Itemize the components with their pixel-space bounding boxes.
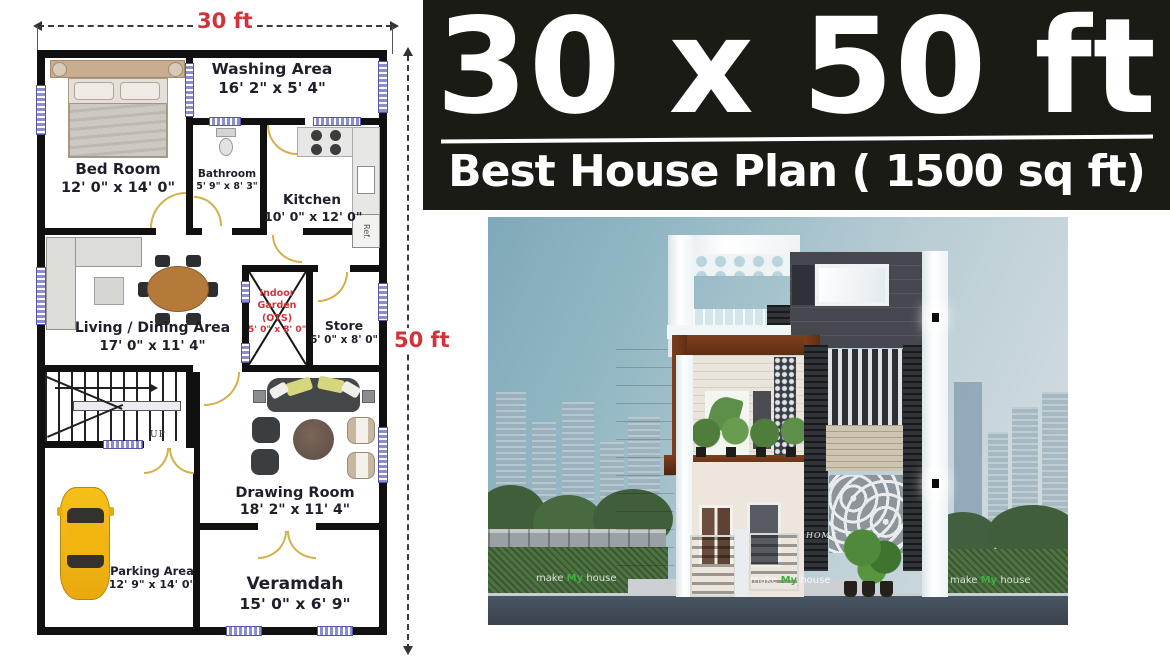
door-swing-icon [267,125,297,155]
door-swing-icon [272,235,302,263]
plant-pot [756,447,766,457]
height-dimension-label: 50 ft [390,328,454,352]
nightstand-icon [168,62,183,77]
watermark-text: house [586,573,616,584]
pillar-right [922,251,948,597]
stove-icon [311,130,322,141]
pergola-slab [692,254,791,276]
bed-icon [50,60,185,78]
stove-icon [311,144,322,155]
stone-band [826,425,910,471]
wall [193,228,202,235]
door-swing-icon [204,372,240,406]
room-label-kitchen: Kitchen 10' 0" x 12' 0" [264,192,360,225]
watermark: make My house [950,575,1030,586]
plant-pot [862,581,875,597]
wall [44,228,156,235]
door-swing-icon [150,192,186,228]
toilet-icon [219,138,233,156]
road [488,596,1068,625]
plant-pot [844,581,857,597]
wall [316,523,379,530]
plant-pot [726,447,736,457]
arrow-down-icon [403,646,413,655]
window-marker [37,268,45,324]
window-marker [379,284,387,320]
room-label-bathroom: Bathroom 5' 9" x 8' 3" [194,168,260,193]
car-roof [67,525,104,553]
wall-lamp-icon [932,313,939,322]
extension-line [392,26,393,54]
house-render: HOME make My house make My house make My… [488,217,1068,625]
wall-lamp-icon [932,479,939,488]
car-mirror [57,507,62,516]
nightstand-icon [52,62,67,77]
thumbnail-page: 30 ft 50 ft [0,0,1170,658]
dining-table-icon [147,266,209,312]
title-banner: 30 x 50 ft Best House Plan ( 1500 sq ft) [423,0,1170,210]
pillow-icon [120,82,160,100]
door-swing-icon [194,196,222,226]
side-table-icon [253,390,266,403]
hedge-right [936,549,1068,595]
tall-plant [840,523,904,585]
window-marker [186,64,193,116]
armchair-icon [347,452,375,479]
watermark-brand: My [781,575,797,586]
stove-icon [330,144,341,155]
wall [37,50,45,635]
width-dimension-label: 30 ft [193,9,257,33]
watermark-brand: My [981,575,997,586]
plant-pot [696,447,706,457]
car-windshield [67,508,104,523]
wall [44,365,193,372]
extension-line [37,26,38,50]
watermark: make My house [750,575,830,586]
watermark-text: make [750,575,777,586]
floor-plan: 30 ft 50 ft [0,0,430,658]
wall [193,523,258,530]
plant-pot [786,447,796,457]
car-rear-window [67,555,104,568]
door-swing-icon [258,531,287,559]
room-label-living-dining: Living / Dining Area 17' 0" x 11' 4" [70,320,235,354]
window-marker [242,344,249,362]
arrow-up-icon [403,47,413,56]
stairs-landing [73,401,181,411]
banner-title: 30 x 50 ft [436,0,1157,135]
door-swing-icon [169,448,194,474]
plant-pot [880,581,893,597]
armchair-icon [252,417,280,443]
window-marker [37,86,45,134]
louver-panel [828,349,904,427]
window-marker [379,62,387,112]
wall [350,265,379,272]
side-table-icon [362,390,375,403]
window-marker [210,118,240,125]
window-marker [227,627,261,635]
room-label-store: Store 6' 0" x 8' 0" [308,318,380,347]
door-swing-icon [144,448,169,474]
armchair-icon [347,417,375,444]
blanket-icon [69,103,167,157]
sink-icon [357,166,375,194]
room-label-parking-area: Parking Area 12' 9" x 14' 0" [100,564,204,592]
watermark-text: make [950,575,977,586]
wall [379,50,387,635]
toilet-icon [216,128,236,137]
gate-post [735,529,748,597]
watermark: make My house [536,573,616,584]
wall [37,50,387,58]
room-label-veramdah: Veramdah 15' 0" x 6' 9" [220,574,370,615]
room-label-bed-room: Bed Room 12' 0" x 14' 0" [56,160,180,197]
window-marker [314,118,360,125]
dining-chair-icon [186,255,201,267]
room-label-indoor-garden: Indoor Garden (OTS) 5' 0" x 8' 0" [248,288,306,337]
window-marker [104,441,142,448]
upper-window [815,264,889,306]
height-dimension-line [407,55,409,650]
wall [186,365,193,448]
room-label-washing-area: Washing Area 16' 2" x 5' 4" [196,60,348,98]
gate-left [690,535,736,597]
fridge-label: Ref. [362,224,371,239]
upper-door-panel [792,265,814,305]
wall [232,228,260,235]
watermark-brand: My [567,573,583,584]
door-swing-icon [318,272,348,302]
watermark-text: house [800,575,830,586]
car-mirror [109,507,114,516]
home-script-text: HOME [806,531,838,540]
banner-subtitle: Best House Plan ( 1500 sq ft) [448,146,1145,197]
coffee-table-icon [293,419,334,460]
stone-strip-right [903,345,923,571]
arrow-right-icon [149,383,158,393]
window-marker [318,627,352,635]
pillow-icon [74,82,114,100]
door-swing-icon [287,531,316,559]
brown-frame-top [672,335,820,355]
room-label-drawing-room: Drawing Room 18' 2" x 11' 4" [222,484,368,520]
sofa-icon [46,237,76,330]
stairs-up-label: UP [150,430,166,440]
dining-chair-icon [155,255,170,267]
armchair-icon [251,449,279,475]
window-marker [379,428,387,482]
watermark-text: make [536,573,563,584]
wall [242,365,379,372]
side-table-icon [94,277,124,305]
watermark-text: house [1000,575,1030,586]
stove-icon [330,130,341,141]
